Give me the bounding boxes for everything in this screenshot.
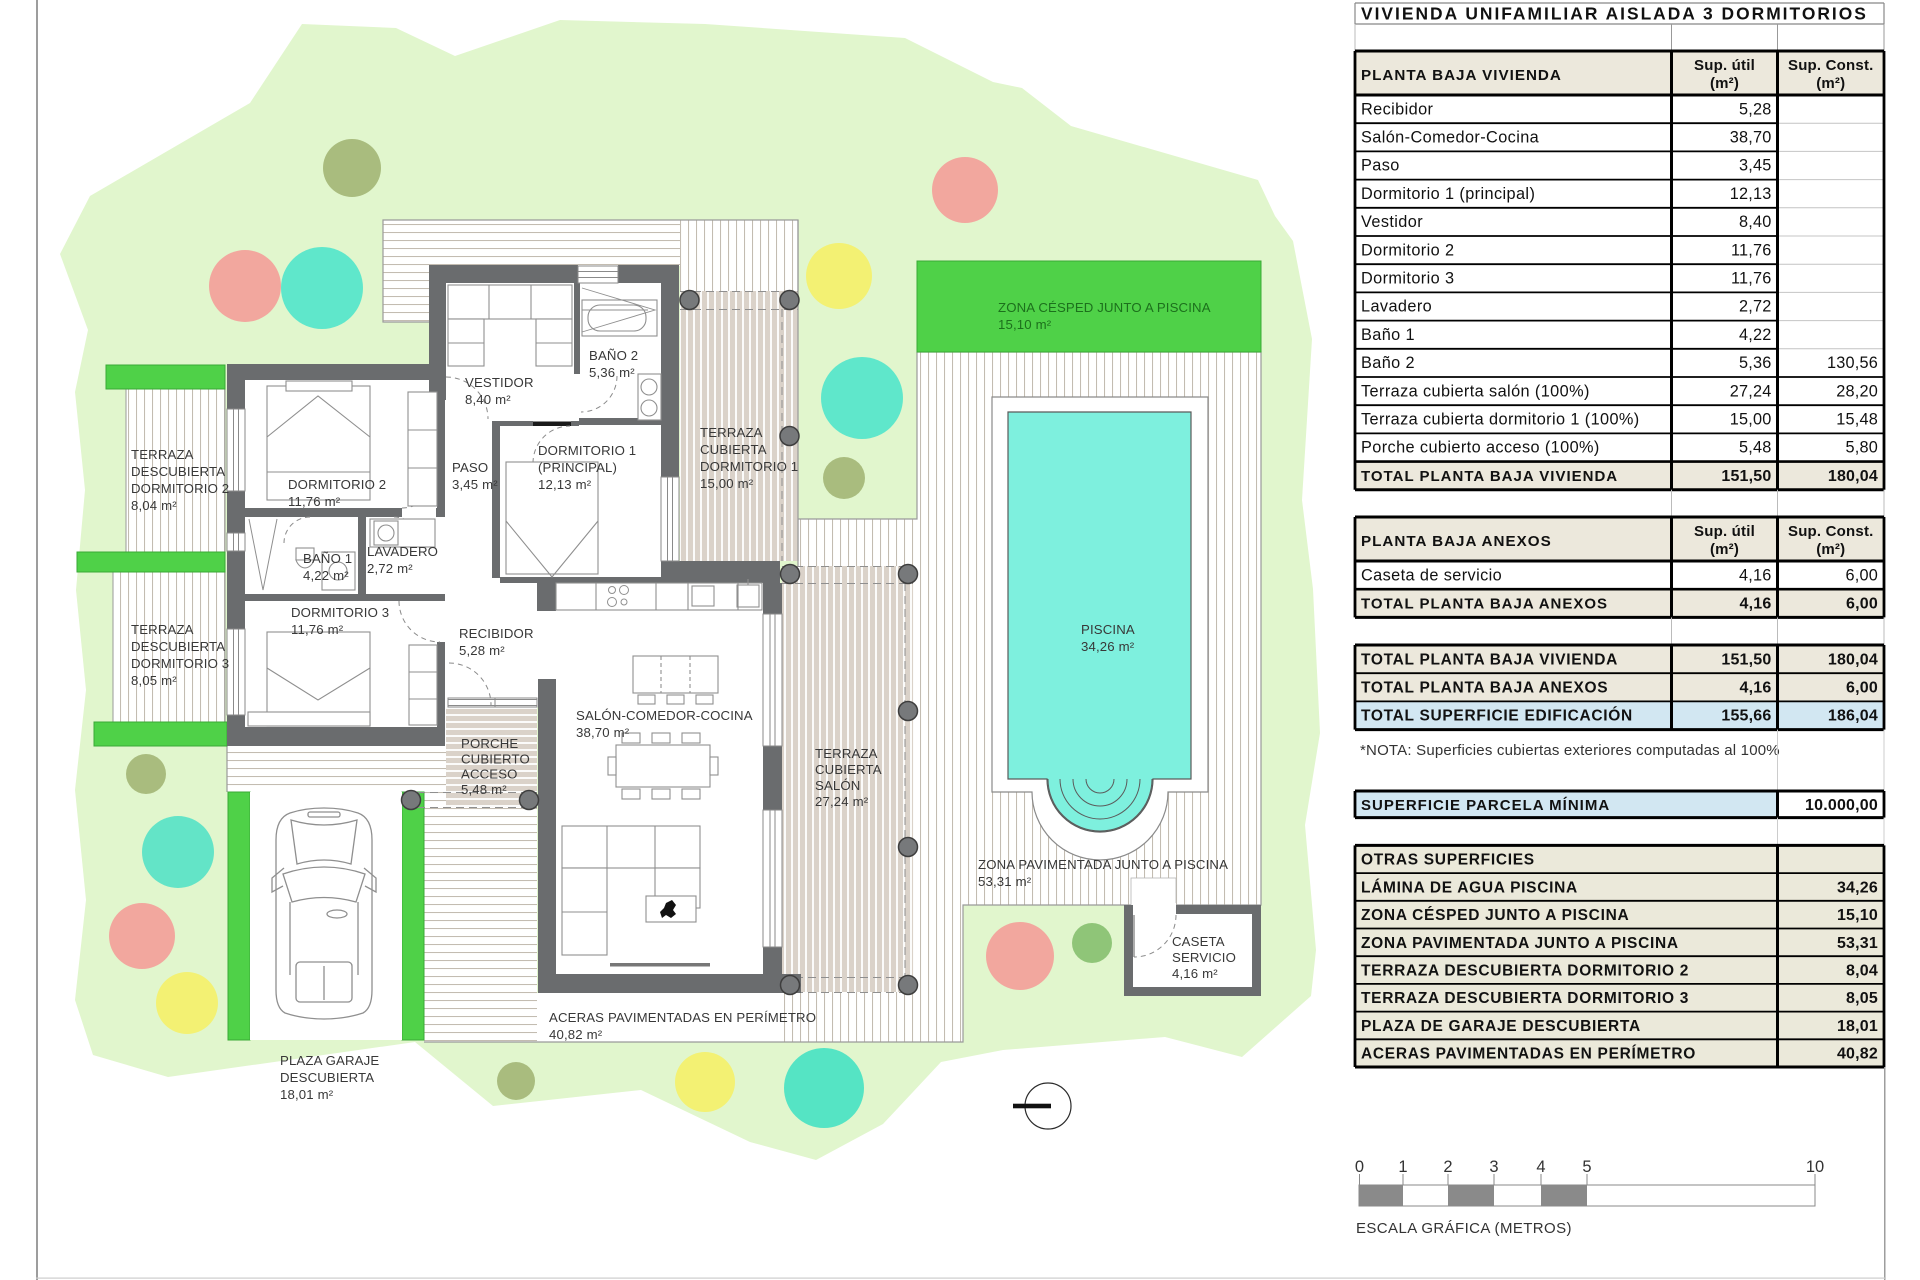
- svg-text:VIVIENDA UNIFAMILIAR AISLADA 3: VIVIENDA UNIFAMILIAR AISLADA 3 DORMITORI…: [1361, 4, 1868, 24]
- svg-text:8,05: 8,05: [1846, 990, 1878, 1007]
- svg-text:180,04: 180,04: [1828, 468, 1878, 485]
- svg-text:15,00: 15,00: [1730, 411, 1772, 429]
- svg-text:ESCALA GRÁFICA (METROS): ESCALA GRÁFICA (METROS): [1356, 1220, 1572, 1237]
- svg-text:10.000,00: 10.000,00: [1805, 797, 1878, 814]
- svg-text:Dormitorio 3: Dormitorio 3: [1361, 270, 1454, 288]
- svg-text:3: 3: [1489, 1158, 1498, 1176]
- svg-text:Terraza cubierta salón (100%): Terraza cubierta salón (100%): [1361, 382, 1590, 400]
- svg-text:8,04: 8,04: [1846, 963, 1878, 980]
- svg-text:(m²): (m²): [1710, 75, 1739, 92]
- svg-text:TOTAL PLANTA BAJA VIVIENDA: TOTAL PLANTA BAJA VIVIENDA: [1361, 651, 1618, 668]
- svg-text:(m²): (m²): [1816, 75, 1845, 92]
- svg-text:Baño 1: Baño 1: [1361, 326, 1415, 344]
- svg-text:Recibidor: Recibidor: [1361, 100, 1434, 118]
- svg-text:5,28: 5,28: [1739, 100, 1772, 118]
- svg-text:28,20: 28,20: [1836, 382, 1878, 400]
- svg-text:PLAZA DE GARAJE DESCUBIERTA: PLAZA DE GARAJE DESCUBIERTA: [1361, 1018, 1641, 1035]
- svg-text:TOTAL SUPERFICIE EDIFICACIÓN: TOTAL SUPERFICIE EDIFICACIÓN: [1361, 707, 1633, 725]
- svg-text:4,16: 4,16: [1740, 680, 1772, 697]
- svg-text:38,70: 38,70: [1730, 129, 1772, 147]
- svg-text:2,72: 2,72: [1739, 298, 1772, 316]
- svg-text:(m²): (m²): [1710, 541, 1739, 558]
- svg-text:Sup. Const.: Sup. Const.: [1788, 523, 1874, 540]
- svg-text:Paso: Paso: [1361, 157, 1400, 175]
- svg-text:27,24: 27,24: [1730, 382, 1772, 400]
- svg-text:Baño 2: Baño 2: [1361, 354, 1415, 372]
- svg-text:186,04: 186,04: [1828, 708, 1878, 725]
- svg-text:2: 2: [1443, 1158, 1452, 1176]
- svg-text:40,82: 40,82: [1837, 1046, 1878, 1063]
- svg-text:53,31: 53,31: [1837, 935, 1878, 952]
- svg-text:11,76: 11,76: [1731, 270, 1772, 288]
- svg-text:11,76: 11,76: [1731, 241, 1772, 259]
- svg-text:Terraza cubierta dormitorio 1: Terraza cubierta dormitorio 1 (100%): [1361, 411, 1640, 429]
- svg-text:151,50: 151,50: [1721, 651, 1771, 668]
- svg-text:15,10: 15,10: [1837, 907, 1878, 924]
- svg-text:ZONA CÉSPED JUNTO A PISCINA: ZONA CÉSPED JUNTO A PISCINA: [1361, 907, 1629, 924]
- svg-text:Sup. Const.: Sup. Const.: [1788, 57, 1874, 74]
- svg-text:6,00: 6,00: [1846, 596, 1878, 613]
- svg-text:5,80: 5,80: [1846, 439, 1879, 457]
- svg-text:(m²): (m²): [1816, 541, 1845, 558]
- svg-text:4,22: 4,22: [1739, 326, 1772, 344]
- svg-text:5,48: 5,48: [1739, 439, 1772, 457]
- svg-text:PLANTA BAJA VIVIENDA: PLANTA BAJA VIVIENDA: [1361, 67, 1562, 84]
- svg-text:18,01: 18,01: [1837, 1018, 1878, 1035]
- svg-text:151,50: 151,50: [1721, 468, 1771, 485]
- svg-text:4: 4: [1536, 1158, 1545, 1176]
- svg-text:0: 0: [1355, 1158, 1364, 1176]
- svg-text:10: 10: [1806, 1158, 1824, 1176]
- svg-text:TOTAL PLANTA BAJA ANEXOS: TOTAL PLANTA BAJA ANEXOS: [1361, 596, 1608, 613]
- svg-text:*NOTA: Superficies cubiertas e: *NOTA: Superficies cubiertas exteriores …: [1360, 742, 1780, 759]
- svg-text:Sup. útil: Sup. útil: [1694, 57, 1755, 74]
- svg-text:TERRAZA DESCUBIERTA DORMITORIO: TERRAZA DESCUBIERTA DORMITORIO 2: [1361, 963, 1689, 980]
- svg-text:TERRAZA DESCUBIERTA DORMITORIO: TERRAZA DESCUBIERTA DORMITORIO 3: [1361, 990, 1689, 1007]
- svg-text:Sup. útil: Sup. útil: [1694, 523, 1755, 540]
- svg-text:34,26: 34,26: [1837, 879, 1878, 896]
- svg-text:12,13: 12,13: [1730, 185, 1772, 203]
- svg-text:15,48: 15,48: [1836, 411, 1878, 429]
- svg-text:8,40: 8,40: [1739, 213, 1772, 231]
- svg-text:Dormitorio 2: Dormitorio 2: [1361, 241, 1454, 259]
- svg-text:180,04: 180,04: [1828, 651, 1878, 668]
- svg-text:Porche cubierto acceso (100%): Porche cubierto acceso (100%): [1361, 439, 1600, 457]
- svg-text:6,00: 6,00: [1846, 680, 1878, 697]
- svg-text:SUPERFICIE PARCELA MÍNIMA: SUPERFICIE PARCELA MÍNIMA: [1361, 797, 1610, 814]
- svg-text:Vestidor: Vestidor: [1361, 213, 1423, 231]
- svg-text:TOTAL PLANTA BAJA VIVIENDA: TOTAL PLANTA BAJA VIVIENDA: [1361, 468, 1618, 485]
- svg-text:Caseta de servicio: Caseta de servicio: [1361, 566, 1502, 584]
- svg-text:TOTAL PLANTA BAJA ANEXOS: TOTAL PLANTA BAJA ANEXOS: [1361, 680, 1608, 697]
- svg-text:4,16: 4,16: [1740, 596, 1772, 613]
- svg-text:5: 5: [1582, 1158, 1591, 1176]
- svg-text:1: 1: [1398, 1158, 1407, 1176]
- svg-text:5,36: 5,36: [1739, 354, 1772, 372]
- svg-text:6,00: 6,00: [1846, 566, 1879, 584]
- svg-text:3,45: 3,45: [1739, 157, 1772, 175]
- svg-text:PLANTA BAJA ANEXOS: PLANTA BAJA ANEXOS: [1361, 533, 1552, 550]
- svg-text:Lavadero: Lavadero: [1361, 298, 1432, 316]
- svg-text:130,56: 130,56: [1827, 354, 1878, 372]
- svg-text:OTRAS SUPERFICIES: OTRAS SUPERFICIES: [1361, 852, 1535, 869]
- svg-text:4,16: 4,16: [1739, 566, 1772, 584]
- svg-text:Dormitorio 1 (principal): Dormitorio 1 (principal): [1361, 185, 1535, 203]
- svg-text:Salón-Comedor-Cocina: Salón-Comedor-Cocina: [1361, 129, 1540, 147]
- svg-text:LÁMINA DE AGUA PISCINA: LÁMINA DE AGUA PISCINA: [1361, 879, 1578, 896]
- svg-text:ACERAS PAVIMENTADAS EN PERÍMET: ACERAS PAVIMENTADAS EN PERÍMETRO: [1361, 1046, 1696, 1063]
- svg-text:ZONA PAVIMENTADA JUNTO A PISCI: ZONA PAVIMENTADA JUNTO A PISCINA: [1361, 935, 1679, 952]
- svg-text:155,66: 155,66: [1721, 708, 1771, 725]
